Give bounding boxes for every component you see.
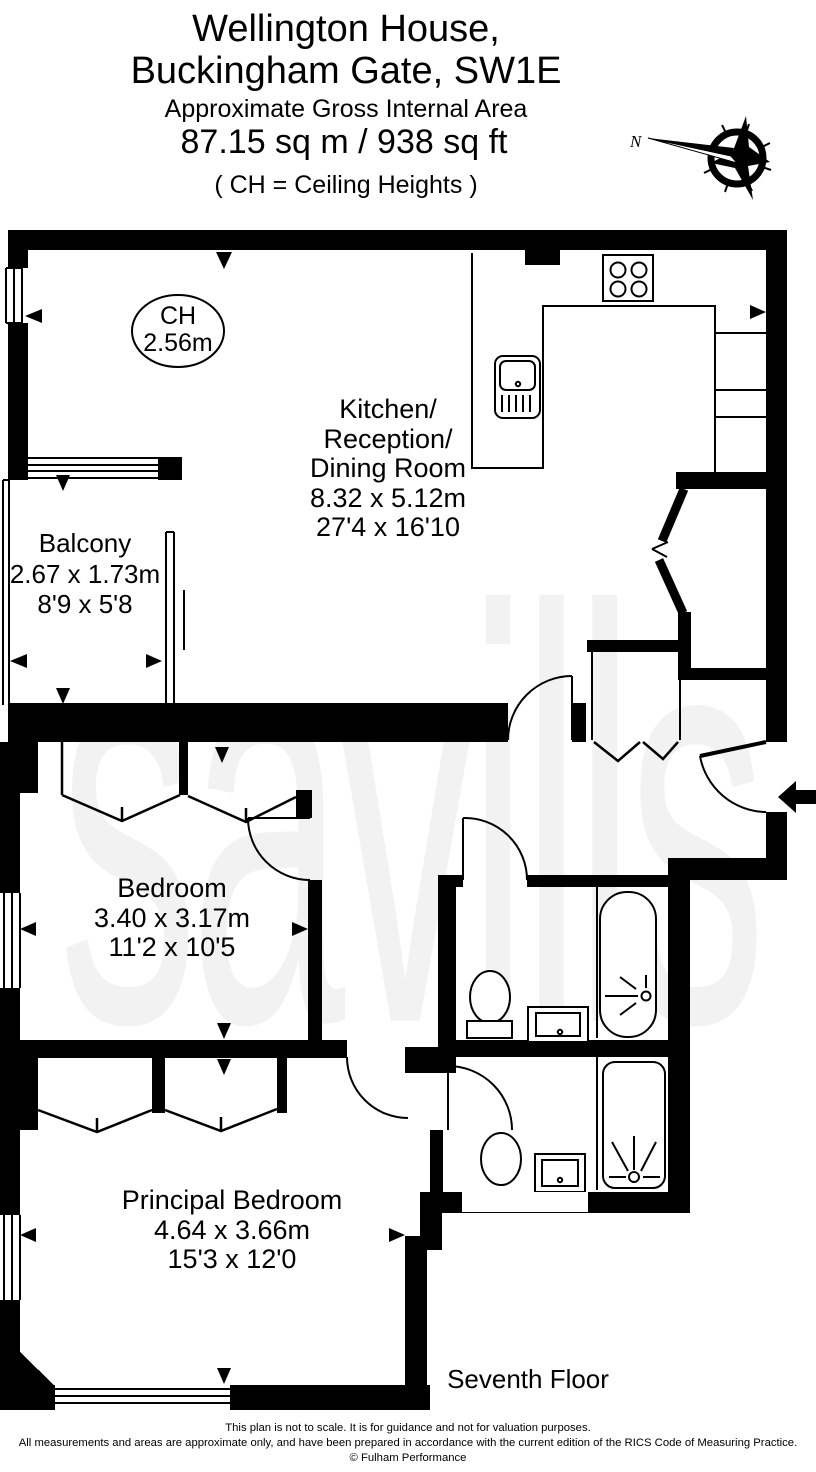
compass-north-label: N <box>629 132 643 151</box>
balcony-size-imperial: 8'9 x 5'8 <box>10 589 160 620</box>
kitchen-name-3: Dining Room <box>310 454 466 484</box>
principal-size-imperial: 15'3 x 12'0 <box>122 1245 343 1275</box>
kitchen-name-2: Reception/ <box>310 425 466 455</box>
disclaimer: This plan is not to scale. It is for gui… <box>0 1421 816 1466</box>
toilet2-icon <box>481 1133 521 1185</box>
balcony-name: Balcony <box>10 528 160 559</box>
bedroom-label: Bedroom 3.40 x 3.17m 11'2 x 10'5 <box>94 874 250 963</box>
hob-icon <box>603 255 653 301</box>
floorplan-page: savills <box>0 0 816 1472</box>
toilet-icon <box>467 971 512 1038</box>
ceiling-height-label: CH 2.56m <box>143 303 212 357</box>
balcony-size-metric: 2.67 x 1.73m <box>10 559 160 590</box>
vanity-sink2-icon <box>535 1154 585 1192</box>
hall-closet <box>592 652 680 761</box>
vanity-sink-icon <box>528 1007 588 1042</box>
bathroom-ledge <box>462 1192 588 1212</box>
entrance-arrow <box>778 781 816 813</box>
disclaimer-line3: © Fulham Performance <box>0 1451 816 1466</box>
disclaimer-line2: All measurements and areas are approxima… <box>0 1436 816 1451</box>
bedroom-size-metric: 3.40 x 3.17m <box>94 904 250 934</box>
subtitle: Approximate Gross Internal Area <box>165 96 528 123</box>
disclaimer-line1: This plan is not to scale. It is for gui… <box>0 1421 816 1436</box>
utility-door-ticks <box>652 542 668 557</box>
principal-bedroom-label: Principal Bedroom 4.64 x 3.66m 15'3 x 12… <box>122 1186 343 1275</box>
gross-internal-area: 87.15 sq m / 938 sq ft <box>181 124 508 160</box>
kitchen-size-imperial: 27'4 x 16'10 <box>310 513 466 543</box>
kitchen-size-metric: 8.32 x 5.12m <box>310 484 466 514</box>
bottom-window <box>55 1385 230 1410</box>
kitchen-label: Kitchen/ Reception/ Dining Room 8.32 x 5… <box>310 395 466 543</box>
shower-icon <box>603 1062 665 1188</box>
balcony-label: Balcony 2.67 x 1.73m 8'9 x 5'8 <box>10 528 160 620</box>
bedroom-size-imperial: 11'2 x 10'5 <box>94 933 250 963</box>
page-title-line1: Wellington House, <box>192 8 500 51</box>
ch-label: CH <box>143 303 212 330</box>
page-title-line2: Buckingham Gate, SW1E <box>131 50 562 93</box>
kitchen-sink-icon <box>495 356 540 418</box>
ch-value: 2.56m <box>143 330 212 357</box>
angled-walls <box>659 489 684 613</box>
principal-name: Principal Bedroom <box>122 1186 343 1216</box>
principal-size-metric: 4.64 x 3.66m <box>122 1216 343 1246</box>
bedroom-name: Bedroom <box>94 874 250 904</box>
floor-label: Seventh Floor <box>447 1364 609 1395</box>
ceiling-height-note: ( CH = Ceiling Heights ) <box>214 172 477 199</box>
compass-icon: N <box>629 116 771 200</box>
kitchen-name-1: Kitchen/ <box>310 395 466 425</box>
bathtub-icon <box>600 892 656 1037</box>
entrance-door <box>700 742 766 812</box>
